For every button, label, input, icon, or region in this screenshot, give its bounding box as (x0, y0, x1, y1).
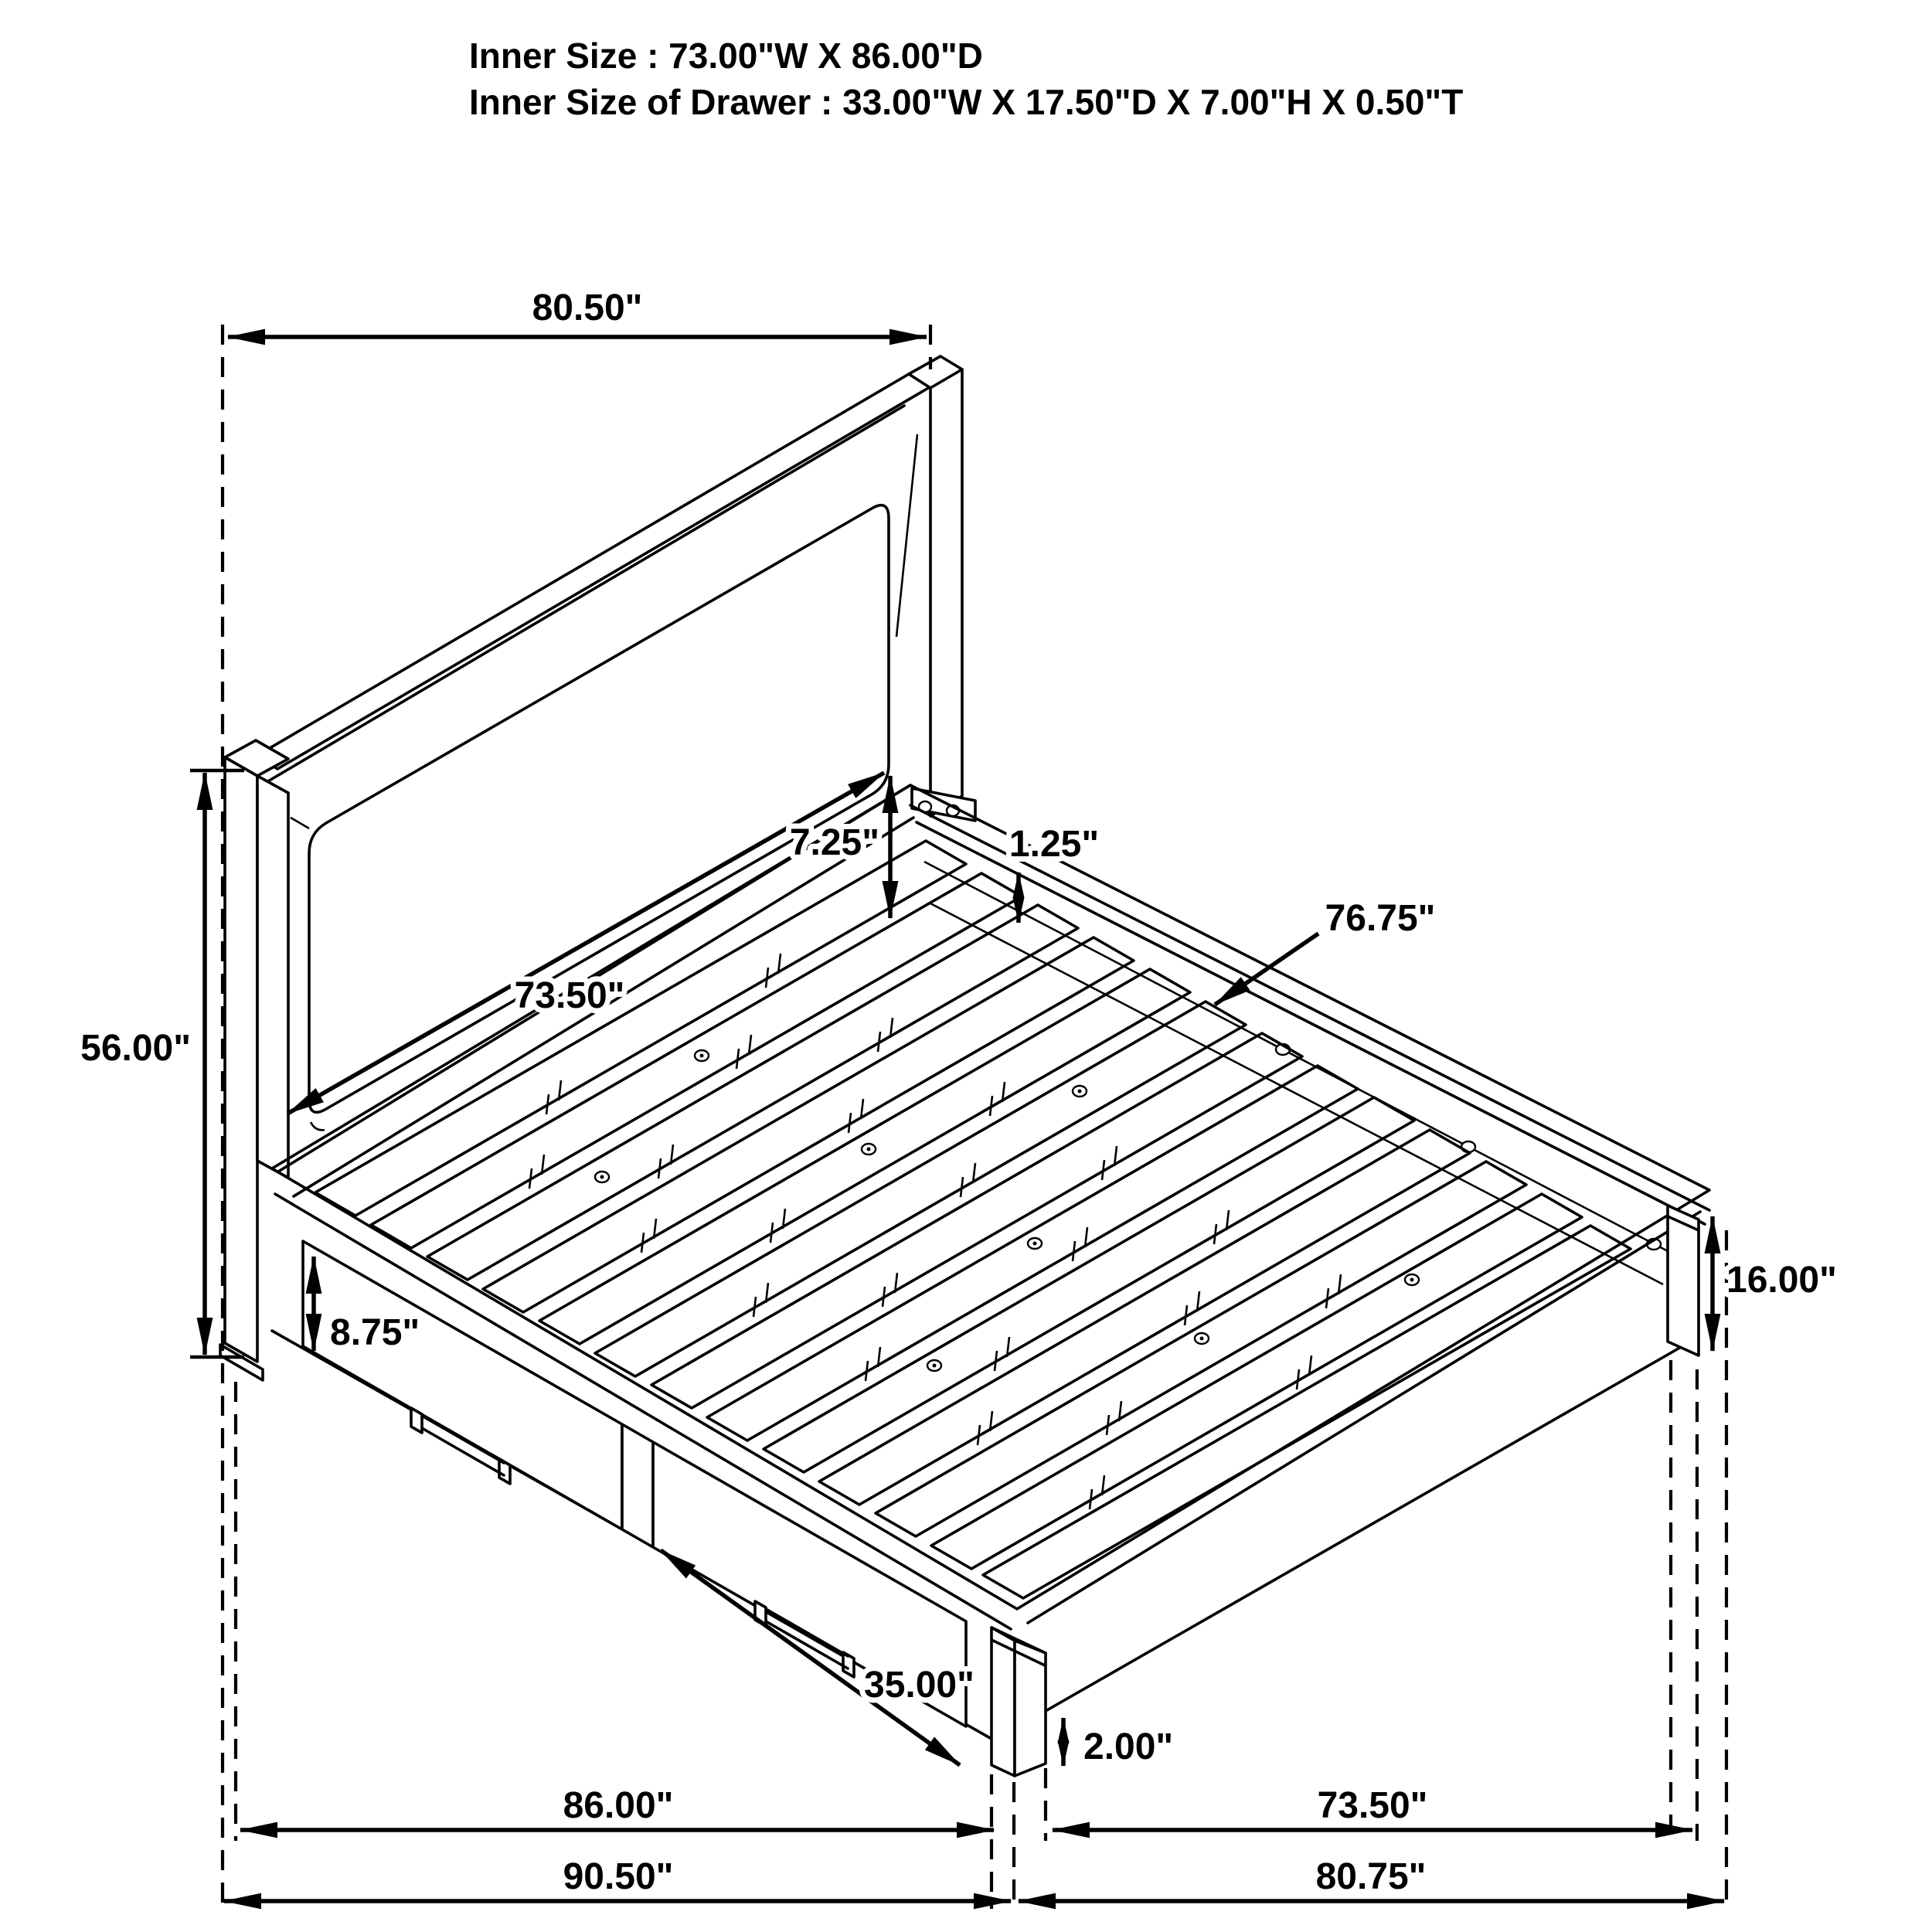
title-line-2: Inner Size of Drawer : 33.00"W X 17.50"D… (469, 82, 1463, 122)
dim-slat-lip-label: 1.25" (1009, 824, 1099, 865)
legs (992, 1206, 1699, 1776)
right-side-rail (910, 805, 1709, 1224)
dim-floor-clearance-label: 2.00" (1083, 1726, 1173, 1767)
dim-inner-width-label: 73.50" (1318, 1785, 1428, 1826)
bed-dimension-diagram: Inner Size : 73.00"W X 86.00"D Inner Siz… (0, 0, 1932, 1932)
dim-overall-width-label: 80.75" (1316, 1856, 1427, 1897)
dim-headboard-height-label: 56.00" (80, 1028, 191, 1069)
headboard-panel (309, 505, 889, 1113)
dim-side-rail-length-label: 76.75" (1325, 898, 1436, 939)
dim-footboard-height-label: 16.00" (1726, 1260, 1837, 1301)
dim-drawer-width-label: 35.00" (864, 1665, 975, 1706)
dim-panel-gap-label: 7.25" (790, 822, 879, 863)
title-line-1: Inner Size : 73.00"W X 86.00"D (469, 36, 983, 76)
dim-drawer-height-label: 8.75" (330, 1312, 420, 1353)
dim-headboard-inner-width-label: 73.50" (515, 975, 625, 1016)
dim-platform-depth-label: 86.00" (563, 1785, 674, 1826)
dim-headboard-width-label: 80.50" (532, 287, 643, 328)
dim-side-rail-leader (1215, 934, 1318, 1005)
drawer-divider (622, 1424, 653, 1547)
dim-overall-depth-label: 90.50" (563, 1856, 674, 1897)
